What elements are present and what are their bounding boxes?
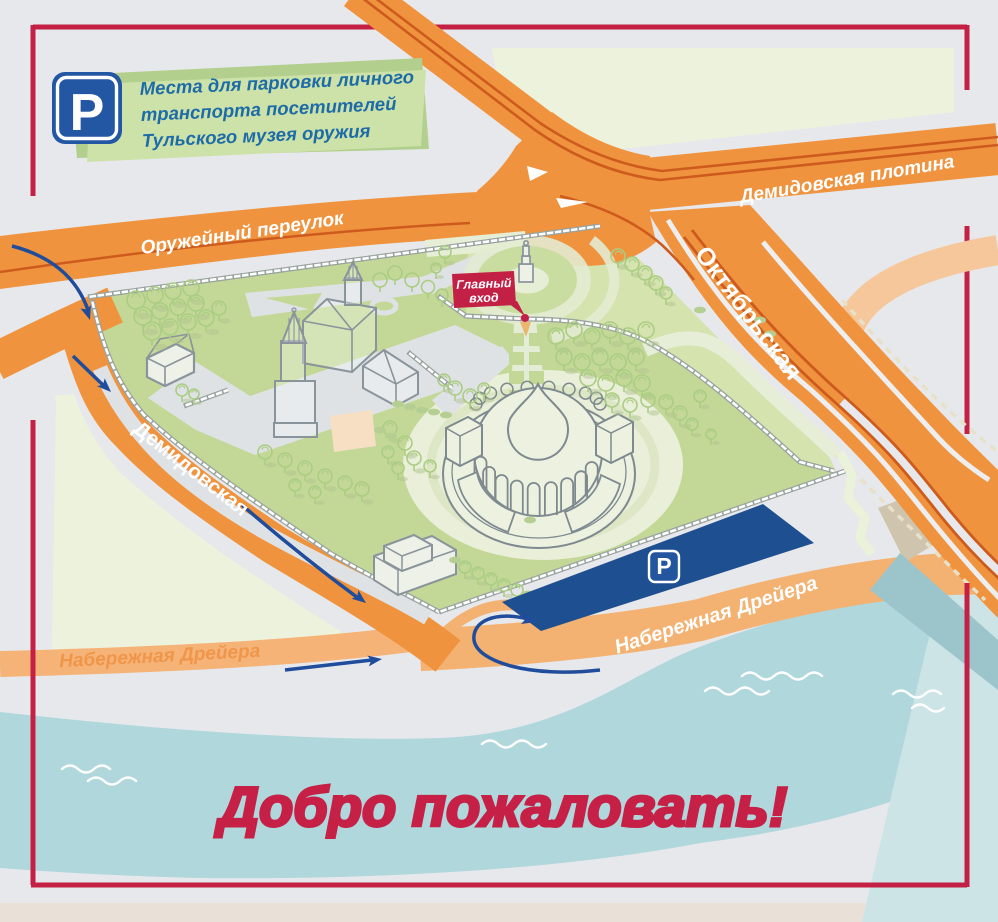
svg-text:P: P: [656, 553, 671, 579]
svg-text:Главный: Главный: [456, 276, 512, 292]
svg-text:P: P: [70, 84, 105, 142]
svg-text:вход: вход: [469, 290, 499, 305]
svg-text:Добро пожаловать!: Добро пожаловать!: [215, 775, 788, 838]
